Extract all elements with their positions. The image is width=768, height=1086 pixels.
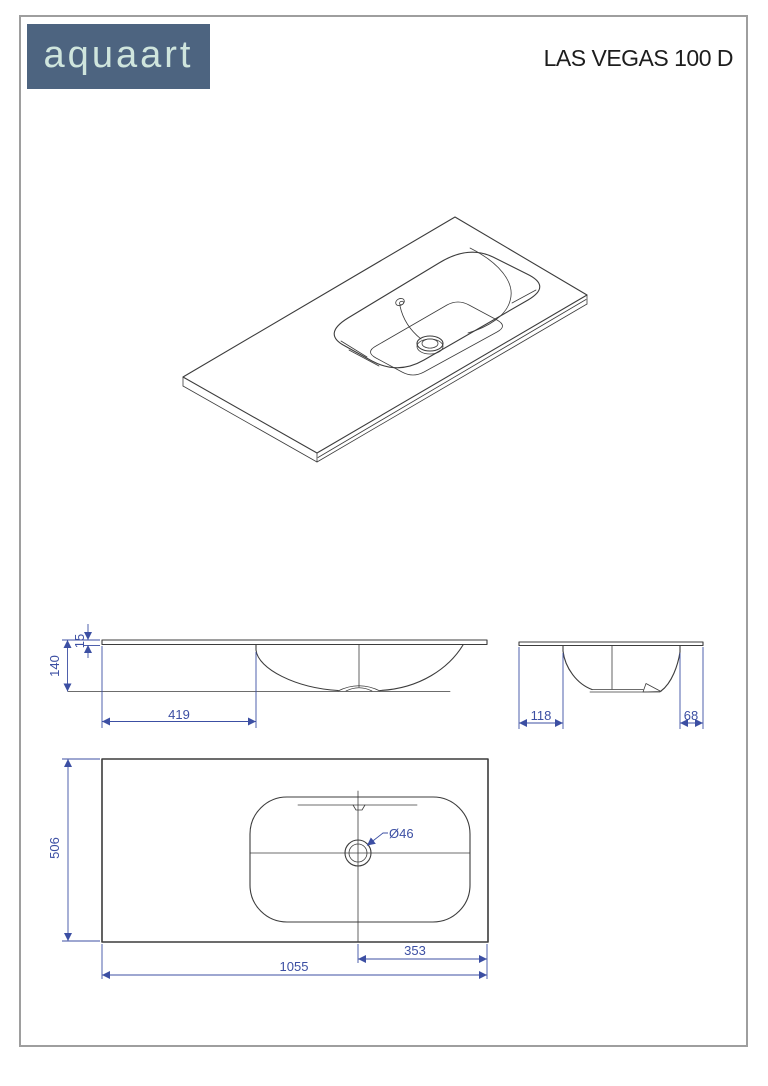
dim-edge-to-basin-left: 118 xyxy=(531,708,552,723)
plan-view: Ø46 506 353 1055 xyxy=(47,759,488,979)
dim-basin-to-edge-right: 68 xyxy=(684,708,698,723)
dim-drain-diameter: Ø46 xyxy=(389,826,414,841)
dim-total-width: 1055 xyxy=(280,959,309,974)
dim-depth: 506 xyxy=(47,837,62,859)
dim-top-thickness: 15 xyxy=(72,634,87,648)
side-elevation-view: 118 68 xyxy=(519,642,703,729)
dim-basin-offset-left: 419 xyxy=(168,707,190,722)
plan-dimensions: Ø46 506 353 1055 xyxy=(47,759,487,979)
overflow-hole-symbol xyxy=(395,297,406,307)
dim-total-height: 140 xyxy=(47,655,62,677)
front-elevation-view: 419 140 15 xyxy=(47,624,487,728)
side-dimensions: 118 68 xyxy=(519,647,703,729)
dim-drain-to-right-edge: 353 xyxy=(404,943,426,958)
technical-drawing: 419 140 15 118 68 xyxy=(0,0,768,1086)
isometric-view xyxy=(183,217,587,462)
